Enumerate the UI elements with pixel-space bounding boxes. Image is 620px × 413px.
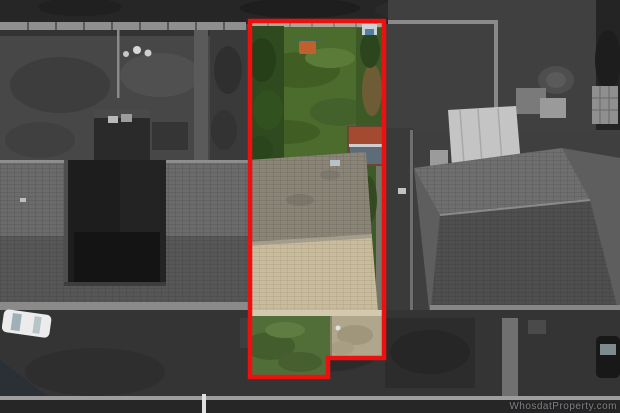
property-color-region <box>245 18 388 378</box>
dark-car <box>596 336 620 378</box>
greenhouse <box>592 86 618 124</box>
left-gardens <box>0 22 248 164</box>
garden-fence <box>0 22 246 30</box>
road-marking <box>202 394 206 413</box>
left-hedge <box>247 26 284 168</box>
house-roof <box>248 152 384 318</box>
aerial-photo: Ardent estates WhosdatProperty.com <box>0 0 620 413</box>
rear-extension-dark <box>64 160 166 286</box>
front-path <box>502 318 518 398</box>
left-terrace-roofs <box>0 160 248 311</box>
garden-path <box>194 30 208 162</box>
photo-watermark: WhosdatProperty.com <box>509 401 617 412</box>
garden-shed-left <box>94 110 150 160</box>
cold-frame <box>362 24 377 35</box>
kerb-line <box>0 396 620 400</box>
aerial-scene <box>0 0 620 413</box>
